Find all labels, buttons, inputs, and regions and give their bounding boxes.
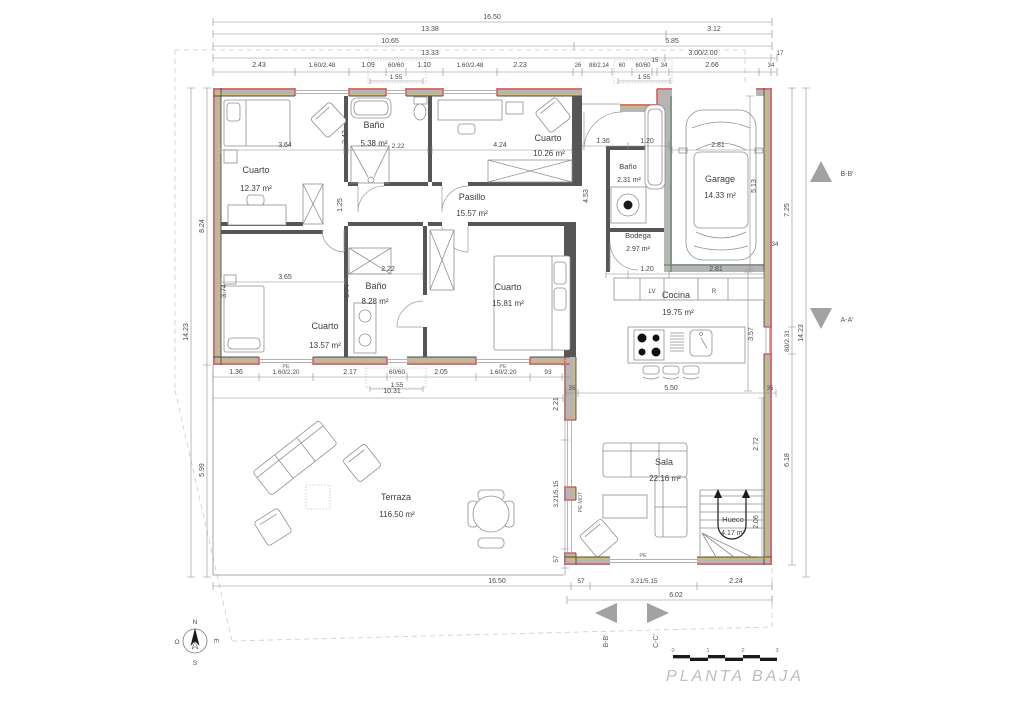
- dim-right: 2.06: [753, 515, 760, 529]
- dim-right: 5.13: [751, 179, 758, 193]
- dim-bottom: 1.36: [229, 369, 243, 376]
- appliance-r-label: R: [712, 289, 717, 295]
- dim-top: 26: [575, 63, 582, 69]
- sofa-icon: [603, 443, 687, 537]
- section-label-bb2: B-B': [603, 634, 610, 647]
- dim-int: 2.22: [381, 266, 395, 273]
- room-name-bano3: Baño: [619, 162, 637, 171]
- dim-right: 3.57: [748, 327, 755, 341]
- room-name-garage: Garage: [705, 174, 735, 184]
- dim-right: 7.25: [784, 203, 791, 217]
- room-name-hueco: Hueco: [722, 515, 744, 524]
- dim-top: 13.33: [421, 50, 439, 57]
- pe-label: PE: [639, 553, 647, 559]
- section-arrow-left-icon: [595, 603, 617, 623]
- dimension-lines-top: 16.50 13.38 3.12 10.65 5.85 13.33 3.00/2…: [213, 14, 784, 84]
- room-area-bano3: 2.31 m²: [617, 177, 641, 184]
- dim-bottom: 3.21/5.15: [630, 578, 657, 585]
- section-label-bb: B-B': [840, 171, 853, 178]
- washing-machine-icon: [611, 187, 646, 223]
- compass-rose: N S O E: [174, 619, 219, 667]
- dim-top: 1.60/2.48: [308, 62, 335, 69]
- coffee-table-icon: [603, 495, 647, 518]
- dim-bottom-total: 16.50: [488, 578, 506, 585]
- dim-left: 5.99: [199, 463, 206, 477]
- pe-label: PE: [282, 364, 290, 370]
- room-name-cuarto2: Cuarto: [534, 133, 561, 143]
- dim-int: 1.25: [337, 198, 344, 212]
- room-area-bano1: 5.38 m²: [360, 139, 387, 148]
- dim-int: 1.36: [596, 138, 610, 145]
- dim-right: 2.72: [753, 437, 760, 451]
- room-name-cuarto4: Cuarto: [494, 282, 521, 292]
- dining-table-icon: [468, 490, 514, 548]
- room-name-cocina: Cocina: [662, 290, 690, 300]
- dim-int: 3.74: [221, 284, 228, 298]
- room-name-cuarto3: Cuarto: [311, 321, 338, 331]
- dim-bottom: 93: [544, 369, 552, 376]
- kitchen-island: [628, 327, 745, 363]
- dim-top: 2.23: [513, 62, 527, 69]
- toilet-icon: [414, 97, 427, 120]
- room-name-cuarto1: Cuarto: [242, 165, 269, 175]
- dim-int: 3.65: [278, 274, 292, 281]
- shower-icon: [351, 146, 389, 183]
- dim-bottom: 2.05: [434, 369, 448, 376]
- dim-int: 1.20: [640, 266, 654, 273]
- dim-int: 2.81: [709, 266, 723, 273]
- section-arrow-right-icon: [647, 603, 669, 623]
- room-area-cuarto4: 15.81 m²: [492, 299, 524, 308]
- dim-bottom: 1.60/2.20: [489, 369, 516, 376]
- dim-top: 2.43: [252, 62, 266, 69]
- dim-top: 60/60: [635, 63, 651, 69]
- dim-edge: 2.21: [553, 397, 560, 411]
- bed-icon: [224, 275, 264, 352]
- bed-icon: [224, 100, 290, 163]
- dim-int: 4.53: [583, 189, 590, 203]
- dim-edge: 57: [553, 555, 560, 563]
- dim-int: 3.74: [344, 284, 351, 298]
- dim-int: 2.22: [392, 143, 405, 150]
- dim-int: 1.20: [640, 138, 654, 145]
- appliance-lv-label: LV: [649, 289, 656, 295]
- dim-int: 4.24: [493, 142, 507, 149]
- dim-bottom: 6.02: [669, 592, 683, 599]
- compass-n: N: [193, 619, 198, 626]
- dim-top: 3.00/2.00: [688, 50, 717, 57]
- section-label-cc: C-C': [653, 634, 660, 648]
- dim-right: 34: [772, 242, 779, 248]
- room-area-cuarto3: 13.57 m²: [309, 341, 341, 350]
- room-name-bodega: Bodega: [625, 231, 652, 240]
- room-name-terraza: Terraza: [381, 492, 411, 502]
- dim-left: 14.23: [183, 323, 190, 341]
- desk-icon: [438, 100, 523, 134]
- dim-top: 13.38: [421, 26, 439, 33]
- outdoor-chair-icon: [254, 508, 293, 547]
- dim-top-total: 16.50: [483, 14, 501, 21]
- wardrobe-icon: [488, 160, 572, 182]
- dim-top: 3.12: [707, 26, 721, 33]
- bathtub-icon: [351, 98, 391, 118]
- room-area-hueco: 4.17 m²: [721, 530, 745, 537]
- room-area-cuarto2: 10.26 m²: [533, 149, 565, 158]
- room-name-bano2: Baño: [365, 281, 386, 291]
- dimension-lines-left: 8.24 14.23 5.99: [183, 88, 211, 577]
- scale-2: 2: [741, 648, 744, 654]
- dim-top: 1.55: [390, 74, 403, 81]
- room-area-bodega: 2.97 m²: [626, 246, 650, 253]
- dim-top: 5.85: [665, 38, 679, 45]
- dim-top: 1.60/2.48: [456, 62, 483, 69]
- dim-int: 35: [569, 386, 576, 392]
- stool-icons: [643, 366, 699, 379]
- room-area-cocina: 19.75 m²: [662, 308, 694, 317]
- dim-right: 6.18: [784, 453, 791, 467]
- floor-plan-drawing: 16.50 13.38 3.12 10.65 5.85 13.33 3.00/2…: [0, 0, 1024, 702]
- drawing-title: PLANTA BAJA: [666, 668, 804, 685]
- room-area-cuarto1: 12.37 m²: [240, 184, 272, 193]
- dim-top: 1.09: [361, 62, 375, 69]
- dim-bottom: 2.24: [729, 578, 743, 585]
- outdoor-sofa-icon: [253, 420, 338, 495]
- scale-bar: 0 1 2 3: [671, 648, 778, 661]
- compass-o: O: [174, 639, 179, 646]
- dim-edge: 3.21/5.15: [553, 480, 560, 507]
- section-arrow-down-icon: [810, 308, 832, 329]
- room-area-terraza: 116.50 m²: [379, 510, 415, 519]
- compass-e: E: [212, 639, 219, 644]
- dim-int: 2.43: [342, 130, 349, 144]
- pe-label: PE: [499, 364, 507, 370]
- dim-int: 2.81: [711, 142, 725, 149]
- dim-top: 10.65: [381, 38, 399, 45]
- dim-top: 60/60: [388, 62, 405, 69]
- dim-top: 34: [768, 63, 775, 69]
- dim-int: 35: [767, 386, 774, 392]
- side-table-icon: [306, 485, 330, 509]
- dim-bottom: 2.17: [343, 369, 357, 376]
- pe-mot-label: PE MOT: [578, 491, 584, 513]
- floor-plan-page: 16.50 13.38 3.12 10.65 5.85 13.33 3.00/2…: [0, 0, 1024, 702]
- dim-top: 88/2.14: [589, 63, 610, 69]
- armchair-icon: [535, 97, 571, 133]
- dim-int: 5.50: [664, 385, 678, 392]
- scale-1: 1: [706, 648, 709, 654]
- double-sink-icon: [354, 303, 376, 353]
- scale-0: 0: [671, 648, 674, 654]
- dim-bottom: 1.60/2.20: [272, 369, 299, 376]
- armchair-icon: [579, 518, 618, 557]
- room-area-garage: 14.33 m²: [704, 191, 736, 200]
- dim-right: 14.23: [798, 324, 805, 342]
- dim-bottom: 10.31: [383, 388, 401, 395]
- room-area-bano2: 8.28 m²: [361, 297, 388, 306]
- bathtub-icon: [645, 105, 665, 189]
- dim-left: 8.24: [199, 219, 206, 233]
- dim-top: 17: [777, 51, 784, 57]
- dim-top: 1.55: [638, 74, 651, 81]
- room-name-pasillo: Pasillo: [459, 192, 486, 202]
- room-area-pasillo: 15.57 m²: [456, 209, 488, 218]
- room-name-bano1: Baño: [363, 120, 384, 130]
- desk-icon: [228, 195, 286, 225]
- dimension-lines-bottom-wing: 1.36 1.60/2.20 2.17 60/60 1.55 2.05 1.60…: [213, 364, 570, 402]
- section-arrow-up-icon: [810, 161, 832, 182]
- dim-right: 80/2.31: [784, 330, 791, 352]
- dim-top: 34: [661, 63, 668, 69]
- dim-top: 1.10: [417, 62, 431, 69]
- dim-int: 3.64: [278, 142, 292, 149]
- dim-top: 60: [619, 63, 626, 69]
- outdoor-chair-icon: [342, 443, 381, 482]
- room-name-sala: Sala: [655, 457, 673, 467]
- scale-3: 3: [775, 648, 778, 654]
- dim-top: 2.66: [705, 62, 719, 69]
- section-label-aa: A-A': [840, 317, 853, 324]
- dimension-lines-bottom: 16.50 57 3.21/5.15 2.24 6.02: [213, 578, 772, 604]
- dim-top: 15: [652, 58, 659, 64]
- wardrobe-icon: [303, 184, 323, 224]
- compass-s: S: [193, 660, 198, 667]
- room-area-sala: 22.16 m²: [649, 474, 681, 483]
- dim-bottom: 57: [577, 578, 585, 585]
- dim-bottom: 60/60: [389, 369, 406, 376]
- wardrobe-icon: [430, 230, 454, 290]
